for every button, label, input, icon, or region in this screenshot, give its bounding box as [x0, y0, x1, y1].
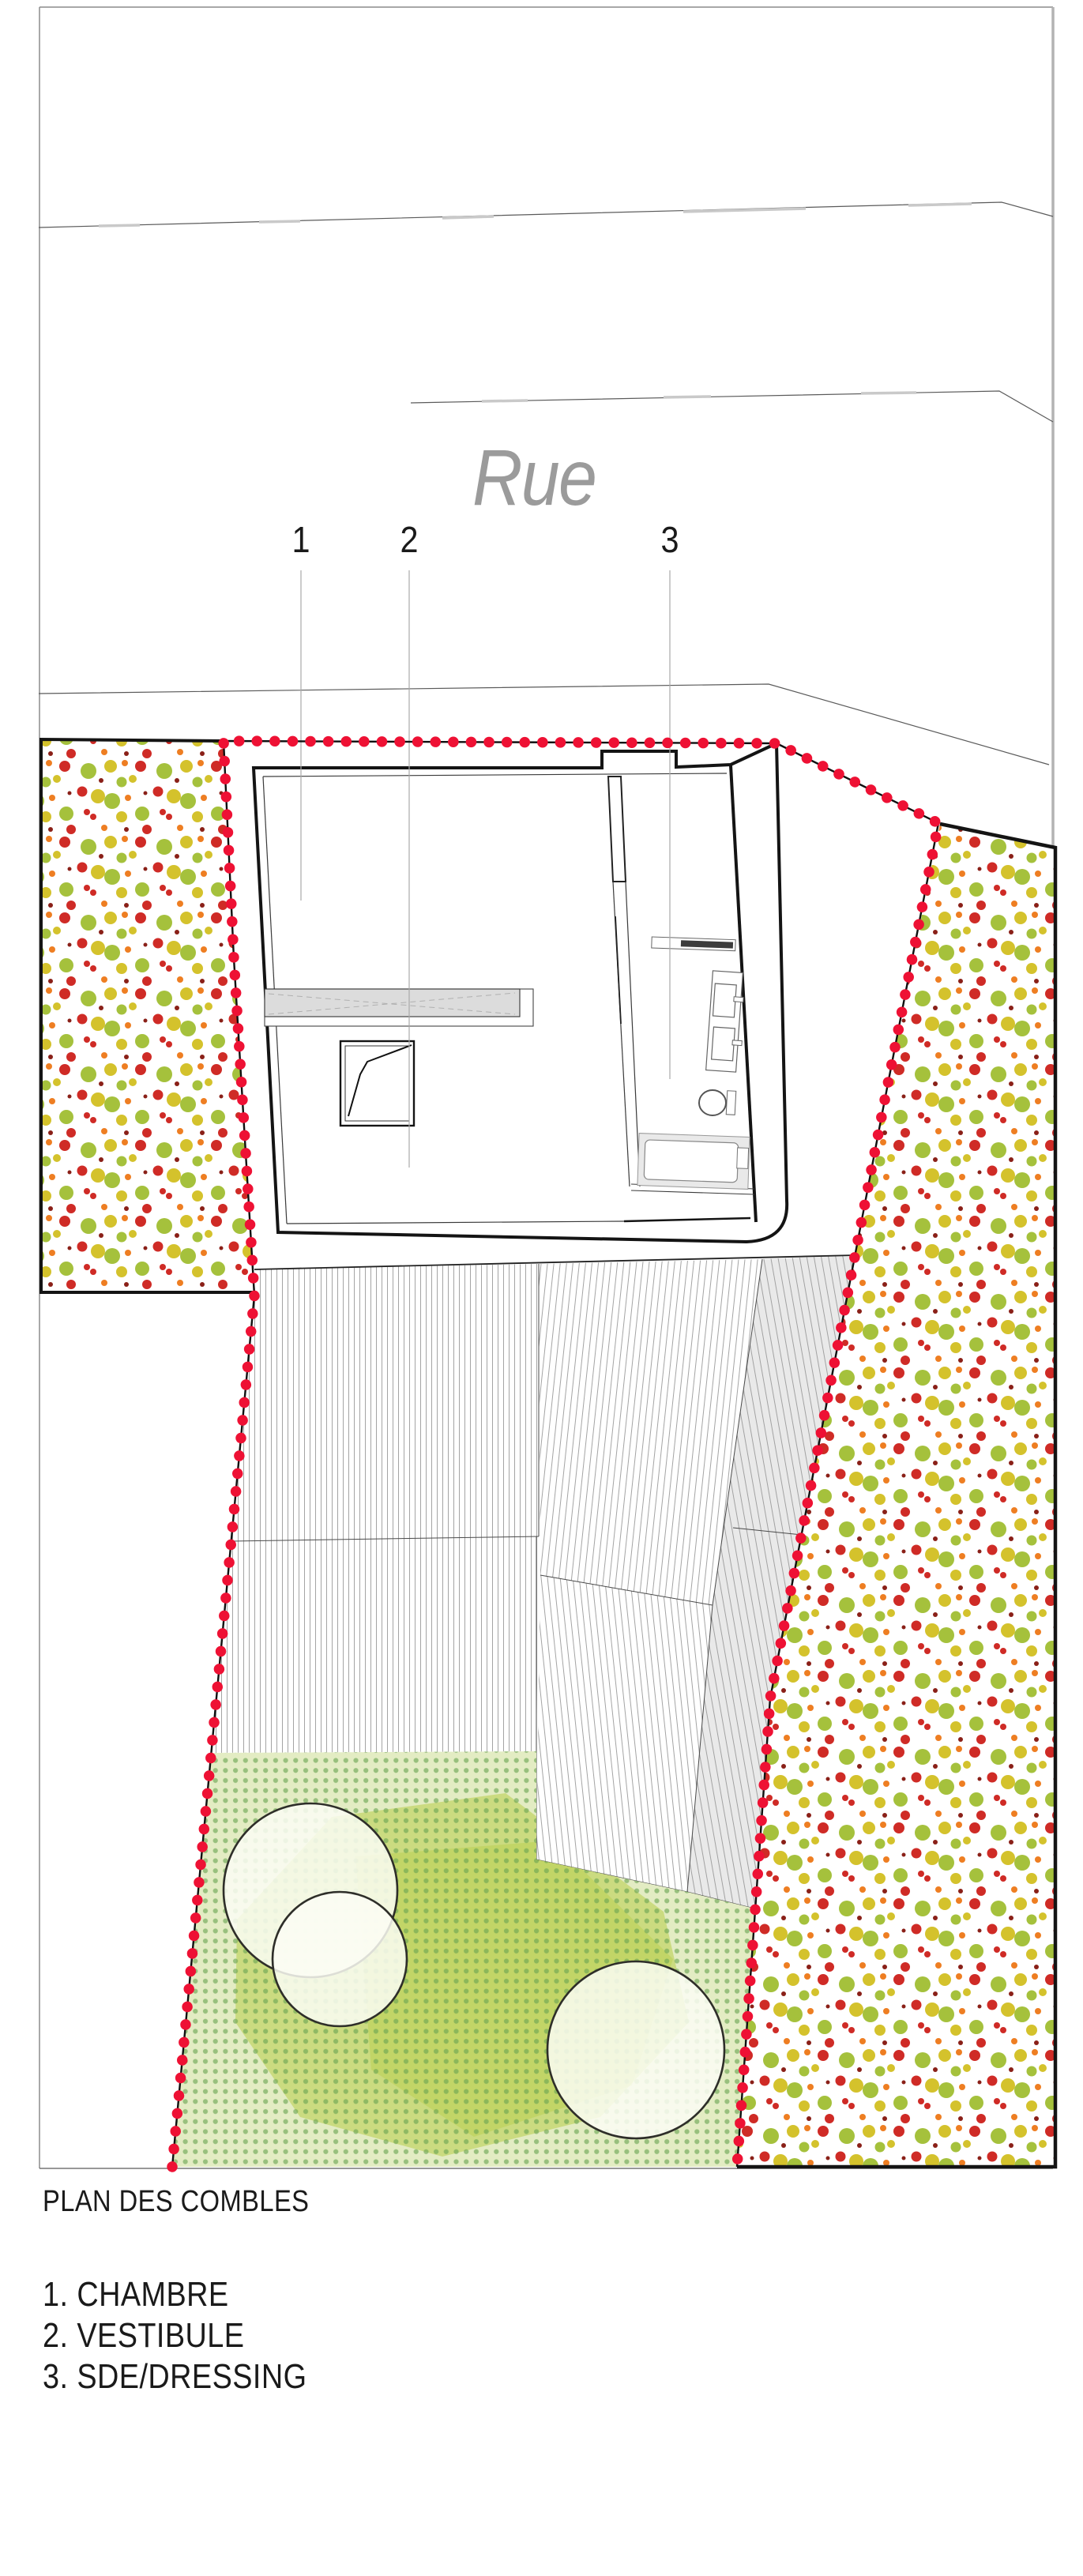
toilet [699, 1090, 736, 1115]
tree-2 [273, 1892, 407, 2026]
faucet-1 [734, 997, 743, 1002]
towel-radiator [652, 937, 735, 951]
tree-3 [547, 1961, 724, 2138]
sink-1 [713, 983, 736, 1017]
roof-panel-lower-middle [536, 1575, 713, 1892]
callout-number-2: 2 [388, 518, 431, 561]
desk-counter [265, 989, 533, 1026]
legend-item-vestibule: 2. VESTIBULE [43, 2316, 244, 2356]
stair-hatch [340, 1041, 414, 1126]
street-upper-edge [39, 202, 1053, 228]
left-planting-area [41, 739, 254, 1292]
faucet-2 [732, 1040, 742, 1046]
street-name-label: Rue [472, 433, 596, 524]
roof-panel-lower-left [211, 1536, 539, 1753]
tub-faucet [737, 1148, 749, 1168]
street-lower-edge [411, 391, 1053, 422]
site-plan-page: Rue 1 2 3 PLAN DES COMBLES 1. CHAMBRE 2.… [0, 0, 1083, 2576]
callout-number-1: 1 [280, 518, 322, 561]
plan-title: PLAN DES COMBLES [43, 2185, 309, 2219]
callout-number-3: 3 [649, 518, 691, 561]
building [254, 743, 787, 1242]
legend-item-sde-dressing: 3. SDE/DRESSING [43, 2357, 306, 2397]
sink-2 [712, 1027, 735, 1061]
bathtub [637, 1134, 750, 1190]
roof-panel-upper-left [231, 1264, 539, 1541]
legend-item-chambre: 1. CHAMBRE [43, 2275, 229, 2315]
